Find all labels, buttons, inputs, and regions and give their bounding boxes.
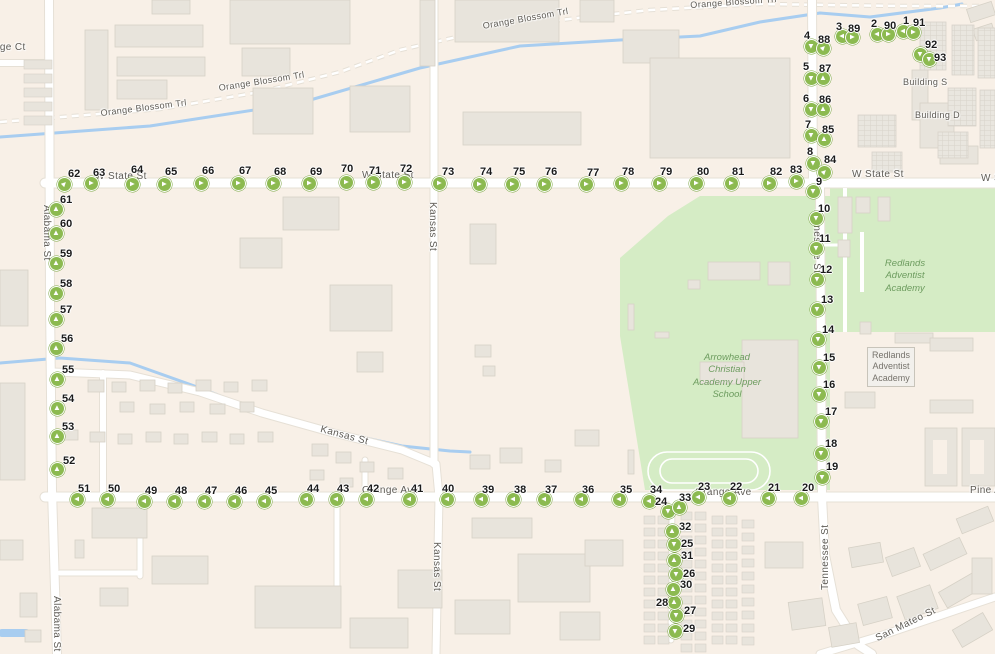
building [726, 588, 737, 596]
courtyard [970, 440, 984, 474]
direction-arrow-up-icon: ▲ [53, 432, 61, 440]
route-marker-number-68: 68 [274, 166, 286, 178]
route-marker-number-27: 27 [684, 605, 696, 617]
route-marker-number-43: 43 [337, 483, 349, 495]
building [92, 508, 147, 538]
direction-arrow-down-icon: ▲ [813, 275, 821, 283]
parking-lot [948, 88, 976, 126]
route-marker-number-57: 57 [60, 304, 72, 316]
building [518, 554, 590, 602]
building [695, 548, 706, 556]
route-marker-number-69: 69 [310, 166, 322, 178]
direction-arrow-right-icon: ▲ [369, 178, 377, 186]
route-marker-number-29: 29 [683, 623, 695, 635]
street-label-pine-ave: Pine Ave [970, 485, 995, 496]
building [545, 460, 561, 472]
direction-arrow-down-icon: ▲ [671, 627, 679, 635]
route-marker-number-23: 23 [698, 481, 710, 493]
direction-arrow-ne-icon: ▲ [58, 178, 69, 189]
building [712, 564, 723, 572]
route-marker-number-58: 58 [60, 278, 72, 290]
building [712, 600, 723, 608]
route-marker-number-20: 20 [802, 482, 814, 494]
route-marker-number-49: 49 [145, 485, 157, 497]
building [100, 588, 128, 606]
building [575, 430, 599, 446]
route-marker-67[interactable]: ▲ [231, 176, 246, 191]
building [688, 280, 700, 289]
building [240, 402, 254, 412]
route-marker-number-3: 3 [836, 21, 842, 33]
route-marker-number-55: 55 [62, 364, 74, 376]
building [120, 402, 134, 412]
building [658, 576, 669, 584]
direction-arrow-up-icon: ▲ [670, 598, 678, 606]
direction-arrow-left-icon: ▲ [443, 495, 451, 503]
route-marker-number-61: 61 [60, 194, 72, 206]
direction-arrow-left-icon: ▲ [477, 495, 485, 503]
direction-arrow-right-icon: ▲ [475, 180, 483, 188]
route-marker-number-74: 74 [480, 166, 492, 178]
courtyard [933, 440, 947, 474]
route-marker-number-81: 81 [732, 166, 744, 178]
route-marker-number-48: 48 [175, 485, 187, 497]
route-marker-number-56: 56 [61, 333, 73, 345]
building [350, 618, 408, 648]
route-marker-number-39: 39 [482, 484, 494, 496]
route-marker-31[interactable]: ▲ [667, 553, 682, 568]
building [644, 576, 655, 584]
building [838, 240, 850, 257]
direction-arrow-up-icon: ▲ [53, 404, 61, 412]
building [168, 383, 182, 393]
building [712, 540, 723, 548]
building [644, 528, 655, 536]
building [118, 434, 132, 444]
street-label-alabama-st: Alabama St [51, 596, 62, 652]
building [695, 512, 706, 520]
route-marker-number-84: 84 [824, 154, 836, 166]
building [112, 382, 126, 392]
building [88, 380, 104, 392]
direction-arrow-right-icon: ▲ [765, 179, 773, 187]
building [357, 352, 383, 372]
route-marker-number-83: 83 [790, 164, 802, 176]
building [681, 596, 692, 604]
route-marker-number-35: 35 [620, 484, 632, 496]
building [202, 432, 217, 442]
direction-arrow-down-icon: ▲ [817, 449, 825, 457]
parking-lot [938, 132, 968, 158]
building [0, 540, 23, 560]
direction-arrow-left-icon: ▲ [140, 497, 148, 505]
street-label-w-state-st: W State St [852, 169, 904, 180]
building [152, 0, 190, 14]
route-marker-32[interactable]: ▲ [665, 524, 680, 539]
street-label-kansas-st: Kansas St [427, 202, 438, 251]
route-marker-number-13: 13 [821, 294, 833, 306]
route-marker-number-33: 33 [679, 492, 691, 504]
direction-arrow-up-icon: ▲ [53, 375, 61, 383]
poi-label-redlands: Redlands Adventist Academy [885, 258, 925, 295]
direction-arrow-right-icon: ▲ [692, 179, 700, 187]
direction-arrow-down-icon: ▲ [664, 507, 672, 515]
route-marker-number-4: 4 [804, 30, 810, 42]
building [420, 0, 435, 66]
direction-arrow-right-icon: ▲ [400, 178, 408, 186]
building [24, 88, 52, 97]
direction-arrow-left-icon: ▲ [260, 497, 268, 505]
direction-arrow-right-icon: ▲ [508, 180, 516, 188]
building [726, 624, 737, 632]
building [252, 380, 267, 391]
street-label-orange-ct: Orange Ct [0, 42, 26, 53]
route-marker-65[interactable]: ▲ [157, 177, 172, 192]
street-label-tennessee-st: Tennessee St [820, 525, 831, 590]
direction-arrow-left-icon: ▲ [615, 495, 623, 503]
route-marker-29[interactable]: ▲ [668, 624, 683, 639]
building [726, 600, 737, 608]
route-marker-number-41: 41 [411, 483, 423, 495]
building [878, 197, 890, 221]
route-marker-30[interactable]: ▲ [666, 582, 681, 597]
building [85, 30, 108, 110]
building [180, 402, 194, 412]
building [742, 624, 754, 632]
street-label-building-s: Building S [903, 77, 948, 87]
building [708, 262, 760, 280]
parking-lot [858, 115, 896, 147]
direction-arrow-up-icon: ▲ [669, 585, 677, 593]
direction-arrow-left-icon: ▲ [797, 494, 805, 502]
building [470, 455, 490, 469]
direction-arrow-right-icon: ▲ [234, 179, 242, 187]
building [628, 304, 634, 330]
direction-arrow-down-icon: ▲ [807, 131, 815, 139]
direction-arrow-down-icon: ▲ [815, 390, 823, 398]
building [828, 623, 859, 648]
route-marker-number-75: 75 [513, 166, 525, 178]
building [742, 611, 754, 619]
route-marker-number-22: 22 [730, 481, 742, 493]
building [24, 74, 52, 83]
direction-arrow-left-icon: ▲ [302, 495, 310, 503]
building [695, 608, 706, 616]
route-marker-number-79: 79 [660, 166, 672, 178]
route-marker-66[interactable]: ▲ [194, 176, 209, 191]
map-canvas[interactable]: Orange CtOrange Blossom TrlOrange Blosso… [0, 0, 995, 654]
direction-arrow-up-icon: ▲ [819, 105, 827, 113]
route-marker-number-50: 50 [108, 483, 120, 495]
direction-arrow-down-icon: ▲ [672, 611, 680, 619]
direction-arrow-left-icon: ▲ [509, 495, 517, 503]
direction-arrow-left-icon: ▲ [200, 497, 208, 505]
building [845, 392, 875, 408]
direction-arrow-down-icon: ▲ [670, 540, 678, 548]
building [849, 542, 884, 567]
building [726, 576, 737, 584]
building [140, 380, 155, 391]
building [860, 322, 871, 334]
building [644, 612, 655, 620]
building [75, 540, 84, 558]
route-marker-27[interactable]: ▲ [669, 608, 684, 623]
parking-lot [980, 90, 995, 148]
building [312, 444, 328, 456]
direction-arrow-down-icon: ▲ [807, 74, 815, 82]
building [930, 338, 973, 351]
road-alabama-st [49, 0, 57, 654]
building [712, 516, 723, 524]
building [475, 345, 491, 357]
building [500, 448, 522, 463]
building [644, 636, 655, 644]
direction-arrow-up-icon: ▲ [819, 74, 827, 82]
route-marker-number-60: 60 [60, 218, 72, 230]
route-marker-number-24: 24 [655, 496, 667, 508]
route-marker-number-37: 37 [545, 484, 557, 496]
building [742, 637, 754, 645]
route-marker-74[interactable]: ▲ [472, 177, 487, 192]
route-marker-number-42: 42 [367, 483, 379, 495]
direction-arrow-up-icon: ▲ [675, 503, 683, 511]
route-marker-number-30: 30 [680, 579, 692, 591]
route-marker-number-45: 45 [265, 485, 277, 497]
route-marker-number-77: 77 [587, 167, 599, 179]
route-marker-number-86: 86 [819, 94, 831, 106]
building [930, 400, 973, 413]
building [788, 598, 826, 630]
direction-arrow-left-icon: ▲ [645, 497, 653, 505]
route-marker-72[interactable]: ▲ [397, 175, 412, 190]
route-marker-number-40: 40 [442, 483, 454, 495]
direction-arrow-left-icon: ▲ [725, 494, 733, 502]
building [695, 536, 706, 544]
direction-arrow-up-icon: ▲ [53, 465, 61, 473]
route-marker-number-5: 5 [803, 61, 809, 73]
route-marker-number-1: 1 [903, 15, 909, 27]
route-marker-number-63: 63 [93, 167, 105, 179]
building [742, 546, 754, 554]
building [923, 537, 967, 570]
building [585, 540, 623, 566]
route-marker-number-91: 91 [913, 17, 925, 29]
direction-arrow-up-icon: ▲ [670, 556, 678, 564]
street-label-w-state-st: W State St [981, 173, 995, 184]
building [695, 572, 706, 580]
route-marker-number-15: 15 [823, 352, 835, 364]
building [650, 58, 790, 158]
building [115, 25, 203, 47]
route-marker-number-2: 2 [871, 18, 877, 30]
route-marker-number-85: 85 [822, 124, 834, 136]
building [152, 556, 208, 584]
direction-arrow-right-icon: ▲ [582, 180, 590, 188]
direction-arrow-right-icon: ▲ [160, 180, 168, 188]
building [726, 564, 737, 572]
building [726, 636, 737, 644]
building [956, 506, 994, 534]
direction-arrow-right-icon: ▲ [909, 28, 917, 36]
route-marker-number-88: 88 [818, 34, 830, 46]
building [253, 88, 313, 134]
building [255, 586, 341, 628]
route-marker-number-70: 70 [341, 163, 353, 175]
route-marker-76[interactable]: ▲ [537, 177, 552, 192]
direction-arrow-down-icon: ▲ [809, 159, 817, 167]
route-marker-number-36: 36 [582, 484, 594, 496]
direction-arrow-down-icon: ▲ [812, 214, 820, 222]
direction-arrow-right-icon: ▲ [435, 179, 443, 187]
building [695, 524, 706, 532]
route-marker-number-17: 17 [825, 406, 837, 418]
building [25, 630, 41, 642]
route-marker-28[interactable]: ▲ [667, 595, 682, 610]
route-marker-70[interactable]: ▲ [339, 175, 354, 190]
building [283, 197, 339, 230]
building [742, 598, 754, 606]
route-marker-number-52: 52 [63, 455, 75, 467]
direction-arrow-up-icon: ▲ [52, 344, 60, 352]
building [0, 383, 25, 480]
building [240, 238, 282, 268]
building [483, 366, 495, 376]
building [742, 585, 754, 593]
direction-arrow-down-icon: ▲ [815, 363, 823, 371]
route-marker-number-67: 67 [239, 165, 251, 177]
building [20, 593, 37, 617]
building [655, 332, 669, 338]
route-marker-number-54: 54 [62, 393, 74, 405]
building [258, 432, 273, 442]
building [230, 434, 244, 444]
route-marker-64[interactable]: ▲ [125, 177, 140, 192]
direction-arrow-down-icon: ▲ [672, 570, 680, 578]
building [838, 197, 852, 233]
route-marker-number-12: 12 [820, 264, 832, 276]
route-marker-number-51: 51 [78, 483, 90, 495]
building [330, 285, 392, 331]
direction-arrow-left-icon: ▲ [103, 495, 111, 503]
building [726, 516, 737, 524]
building [117, 80, 167, 99]
route-marker-number-62: 62 [68, 168, 80, 180]
building [726, 612, 737, 620]
building [470, 224, 496, 264]
building [628, 450, 634, 474]
direction-arrow-left-icon: ▲ [577, 495, 585, 503]
direction-arrow-left-icon: ▲ [540, 495, 548, 503]
route-marker-number-72: 72 [400, 163, 412, 175]
poi-label-arrowhead: Arrowhead Christian Academy Upper School [693, 352, 761, 401]
route-marker-number-87: 87 [819, 63, 831, 75]
building [224, 382, 238, 392]
route-marker-number-93: 93 [934, 52, 946, 64]
building [644, 564, 655, 572]
direction-arrow-up-icon: ▲ [52, 205, 60, 213]
direction-arrow-up-icon: ▲ [668, 527, 676, 535]
building [712, 528, 723, 536]
direction-arrow-right-icon: ▲ [540, 180, 548, 188]
building [695, 560, 706, 568]
building [388, 468, 403, 479]
building [742, 559, 754, 567]
parking-lot [978, 28, 995, 78]
route-marker-number-11: 11 [819, 233, 831, 245]
building [560, 612, 600, 640]
route-marker-number-92: 92 [925, 39, 937, 51]
building [966, 1, 995, 22]
building [768, 262, 790, 285]
building [463, 112, 581, 145]
building [695, 596, 706, 604]
building [695, 632, 706, 640]
direction-arrow-left-icon: ▲ [230, 497, 238, 505]
poi-label-redlands: Redlands Adventist Academy [867, 347, 915, 387]
route-marker-number-38: 38 [514, 484, 526, 496]
route-marker-number-25: 25 [681, 538, 693, 550]
route-marker-number-14: 14 [822, 324, 834, 336]
building [644, 540, 655, 548]
route-marker-number-7: 7 [805, 119, 811, 131]
route-marker-25[interactable]: ▲ [667, 537, 682, 552]
route-marker-number-18: 18 [825, 438, 837, 450]
building [712, 612, 723, 620]
building [336, 452, 351, 463]
building [712, 636, 723, 644]
street-label-kansas-st: Kansas St [431, 542, 442, 591]
building [117, 57, 205, 76]
building [681, 644, 692, 652]
direction-arrow-down-icon: ▲ [807, 42, 815, 50]
route-marker-number-19: 19 [826, 461, 838, 473]
building [310, 470, 324, 480]
route-marker-number-73: 73 [442, 166, 454, 178]
green-area [620, 196, 830, 490]
route-marker-number-65: 65 [165, 166, 177, 178]
street-label-building-d: Building D [915, 110, 960, 120]
building [644, 624, 655, 632]
building [858, 596, 893, 625]
building [196, 380, 211, 391]
direction-arrow-left-icon: ▲ [694, 493, 702, 501]
direction-arrow-left-icon: ▲ [170, 497, 178, 505]
route-marker-number-80: 80 [697, 166, 709, 178]
building [0, 270, 28, 326]
building [712, 588, 723, 596]
building [658, 636, 669, 644]
route-marker-75[interactable]: ▲ [505, 177, 520, 192]
building [24, 60, 52, 69]
route-marker-number-90: 90 [884, 20, 896, 32]
direction-arrow-left-icon: ▲ [405, 495, 413, 503]
direction-arrow-right-icon: ▲ [342, 178, 350, 186]
direction-arrow-down-icon: ▲ [925, 55, 933, 63]
direction-arrow-right-icon: ▲ [197, 179, 205, 187]
route-marker-number-82: 82 [770, 166, 782, 178]
route-marker-number-64: 64 [131, 164, 143, 176]
route-marker-number-46: 46 [235, 485, 247, 497]
route-marker-number-6: 6 [803, 93, 809, 105]
building [150, 404, 165, 414]
building [712, 552, 723, 560]
direction-arrow-right-icon: ▲ [617, 179, 625, 187]
building [24, 102, 52, 111]
route-marker-number-71: 71 [369, 165, 381, 177]
direction-arrow-right-icon: ▲ [269, 179, 277, 187]
building [644, 588, 655, 596]
building [742, 520, 754, 528]
